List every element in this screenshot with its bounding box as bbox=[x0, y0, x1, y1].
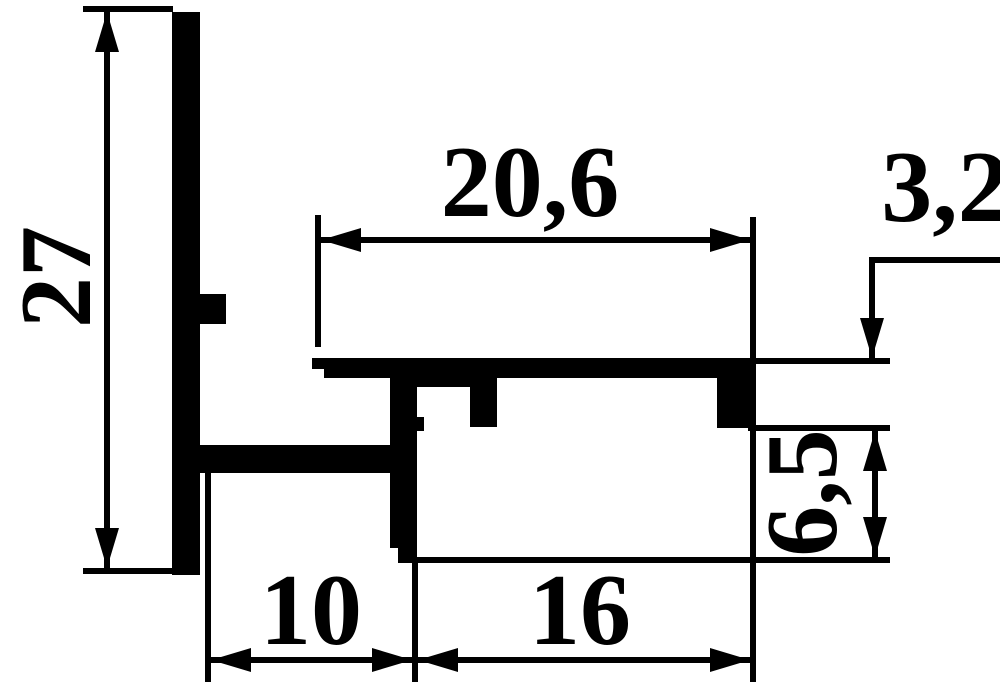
extension-line-27-bottom bbox=[83, 568, 173, 574]
profile-left-wall bbox=[172, 12, 200, 575]
arrow-65-down-icon bbox=[863, 517, 887, 557]
drawing-canvas: 27 20,6 3,2 6,5 10 16 bbox=[0, 0, 1000, 690]
dim-label-flange-lip-depth: 3,2 bbox=[881, 137, 1000, 239]
dim-label-overall-height: 27 bbox=[6, 226, 108, 328]
arrow-206-left-icon bbox=[321, 228, 361, 252]
arrow-10-left-icon bbox=[211, 648, 251, 672]
arrow-27-up-icon bbox=[95, 12, 119, 52]
profile-hook-tab bbox=[470, 378, 497, 427]
arrow-32-down-icon bbox=[860, 318, 884, 358]
dim-label-bottom-right-span: 16 bbox=[529, 560, 631, 662]
profile-right-tab bbox=[717, 378, 753, 428]
profile-bottom-arm bbox=[200, 445, 413, 473]
arrow-27-down-icon bbox=[95, 528, 119, 568]
arrow-206-right-icon bbox=[710, 228, 750, 252]
profile-web-nub bbox=[415, 417, 424, 431]
dim-label-bottom-left-span: 10 bbox=[260, 560, 362, 662]
extension-line-plate-top bbox=[753, 358, 890, 364]
profile-top-plate bbox=[312, 358, 753, 378]
arrow-16-left-icon bbox=[418, 648, 458, 672]
extension-line-web-bottom bbox=[398, 557, 890, 563]
leader-line-32 bbox=[869, 257, 1000, 263]
arrow-16-right-icon bbox=[710, 648, 750, 672]
dim-label-channel-depth: 6,5 bbox=[752, 429, 854, 557]
plate-left-step-notch bbox=[312, 369, 324, 378]
arrow-65-up-icon bbox=[863, 431, 887, 471]
profile-center-web bbox=[390, 378, 417, 548]
arrow-10-right-icon bbox=[372, 648, 412, 672]
dim-label-top-flange-width: 20,6 bbox=[441, 132, 620, 234]
profile-left-wall-nub bbox=[200, 294, 226, 324]
